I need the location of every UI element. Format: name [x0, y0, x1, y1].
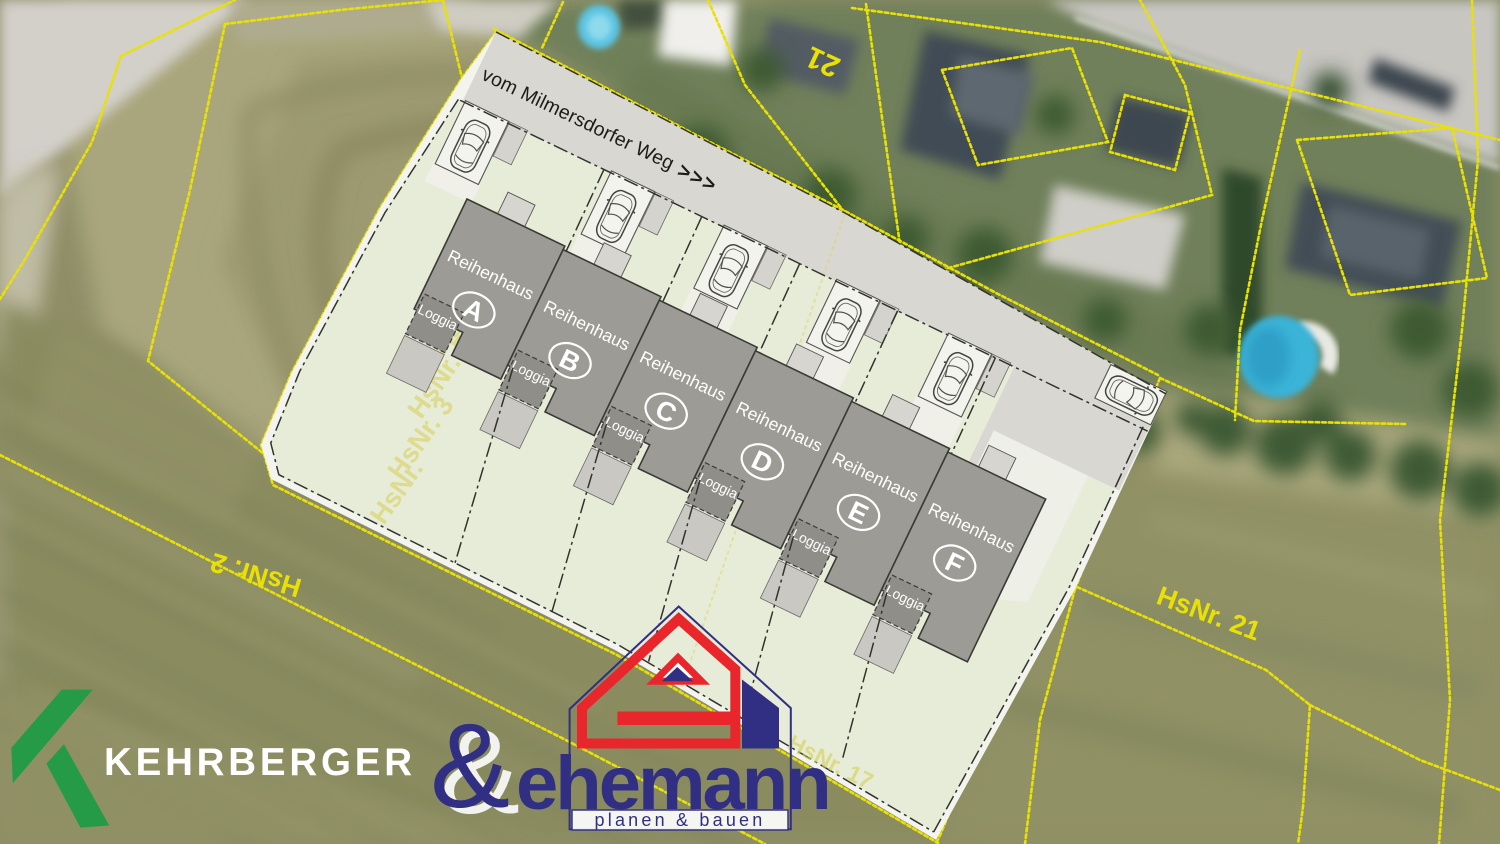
svg-text:planen & bauen: planen & bauen	[595, 810, 766, 830]
svg-text:&: &	[430, 699, 510, 833]
svg-text:KEHRBERGER: KEHRBERGER	[104, 741, 416, 784]
